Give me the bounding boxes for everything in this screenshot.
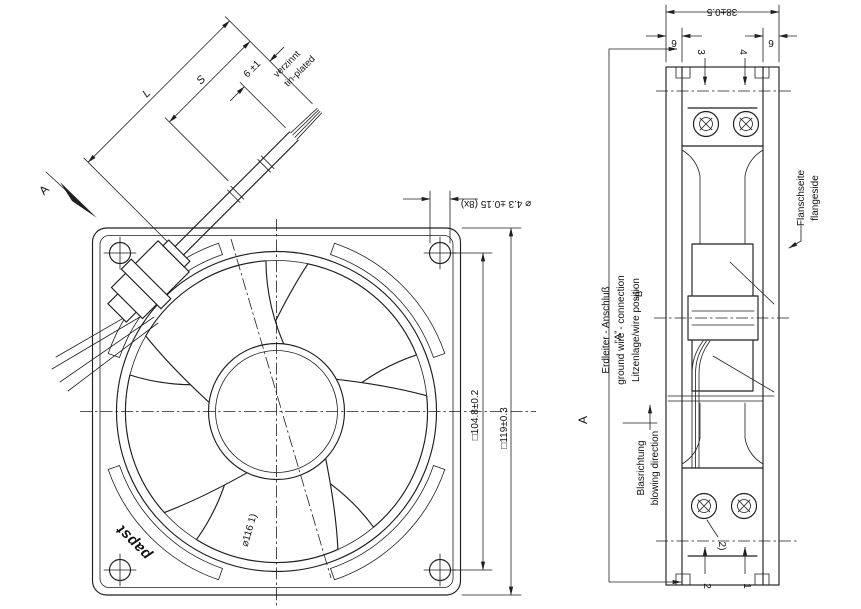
flange-side-leader — [789, 226, 801, 248]
cable — [175, 132, 298, 255]
drawing-canvas: ⌀116 1) papst A L — [0, 0, 861, 609]
fan-technical-drawing: ⌀116 1) papst A L — [0, 0, 861, 609]
view-direction-arrow: A — [36, 172, 97, 218]
airflow-label-en: blowing direction — [650, 431, 661, 506]
mounting-hole — [104, 554, 136, 586]
ground-wire-label-en: ground wire - connection — [616, 275, 627, 385]
wire-position-b-label: "B" — [634, 287, 645, 300]
motor-section — [654, 244, 792, 392]
flange-side-label-de: Flanschseite — [796, 169, 807, 226]
flange-side-annotation: Flanschseite flangeside — [789, 169, 821, 248]
screw — [694, 112, 719, 137]
screw — [734, 112, 759, 137]
item-3-label: 3 — [695, 49, 706, 55]
view-arrow-label: A — [36, 182, 52, 198]
flange-thickness-dimensions: 9 9 — [646, 28, 797, 62]
internal-wires — [668, 341, 774, 468]
mounting-hole — [424, 554, 456, 586]
airflow-label-de: Blasrichtung — [636, 440, 647, 495]
front-view: ⌀116 1) papst A L — [18, 0, 536, 609]
item-1-label: 1 — [741, 583, 752, 589]
bolt-square-dim-label: □104.8±0.2 — [470, 389, 481, 440]
tin-length-dim-label: 6 ±1 — [242, 58, 264, 80]
cable-ferrules — [227, 156, 274, 203]
screw-note-label: 2) — [716, 542, 727, 551]
ground-wire-annotation: Erdleiter - Anschluß ground wire - conne… — [601, 275, 645, 385]
depth-dim-label: 38±0.5 — [706, 6, 737, 17]
depth-dimension: 38±0.5 — [666, 5, 779, 62]
ground-wire-label-de: Erdleiter - Anschluß — [601, 286, 612, 373]
flange-side-label-en: flangeside — [810, 175, 821, 221]
airflow-annotation: Blasrichtung blowing direction — [623, 405, 661, 505]
frame-square-dim-label: □119±0.3 — [499, 407, 510, 449]
item-callouts-bottom: 2 1 2) — [609, 520, 752, 589]
flange-right-dim-label: 9 — [768, 39, 774, 50]
brand-logo: papst — [112, 521, 155, 564]
channel-lines — [682, 108, 763, 556]
tinned-lead-ends — [291, 107, 323, 139]
lead-length-dim-label: L — [140, 87, 153, 100]
screw-note-leader — [707, 520, 718, 537]
venturi-fillets — [682, 150, 763, 464]
flange-screws — [692, 112, 759, 519]
item-2-label: 2 — [701, 583, 712, 589]
screw — [732, 494, 757, 519]
flange-left-dim-label: 9 — [671, 39, 677, 50]
venturi-walls — [700, 176, 745, 438]
item-4-label: 4 — [737, 49, 748, 55]
side-outline — [666, 67, 779, 585]
mounting-hole — [424, 237, 456, 269]
screw — [692, 494, 717, 519]
side-view-label: A — [576, 416, 590, 424]
wire-position-a-label: "A" — [613, 330, 624, 343]
hole-diameter-label: ⌀ 4.3 ±0.15 (8x) — [461, 198, 531, 209]
side-view: 38±0.5 9 9 3 4 2 1 2) — [576, 5, 821, 589]
